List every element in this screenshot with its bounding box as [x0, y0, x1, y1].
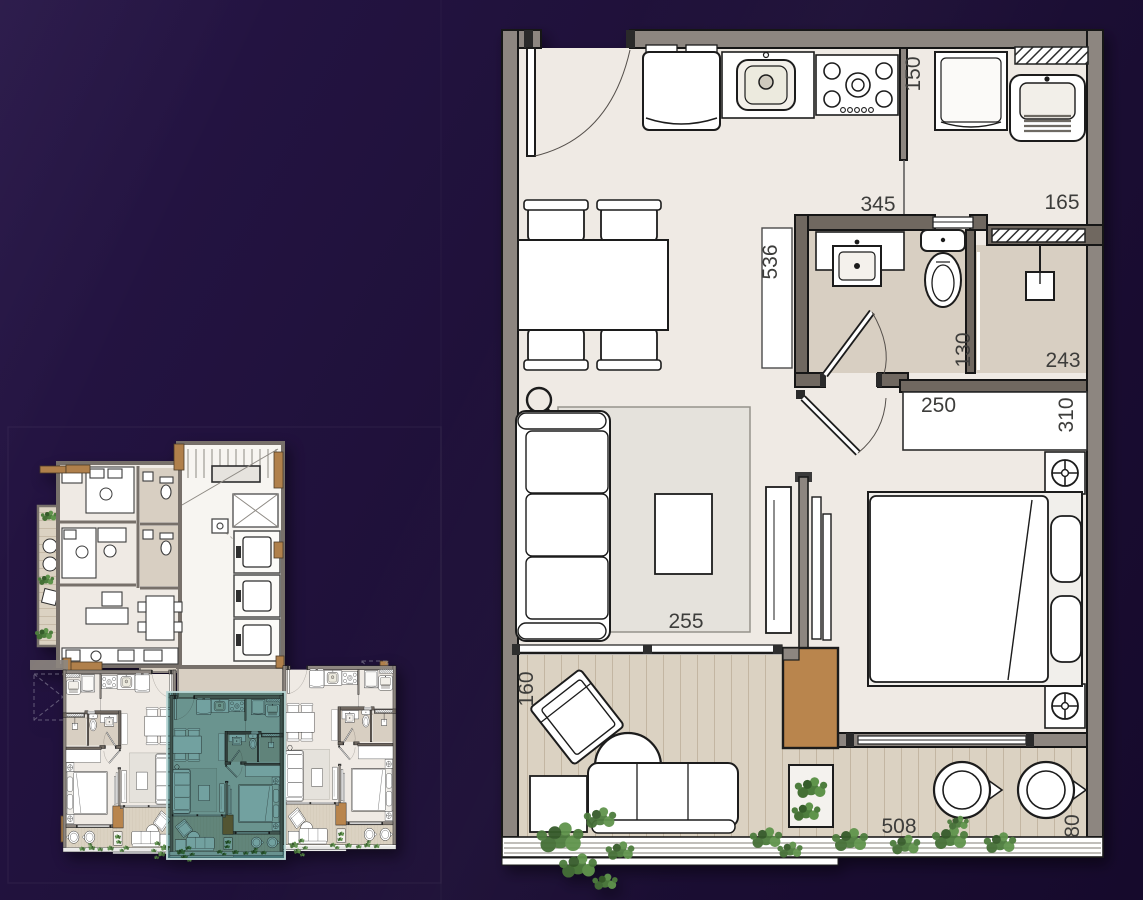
- key-unit-right: [283, 666, 396, 857]
- dim-bath: 130: [952, 332, 975, 367]
- accessible-lobby-icon: [212, 519, 228, 533]
- elevator-icon: [234, 575, 280, 617]
- core-stairs-elevators: [178, 443, 283, 667]
- highlighted-unit-overlay: [167, 692, 285, 859]
- dim-balcony-depth: 160: [515, 671, 538, 706]
- floor-plan-svg: 150 345 165 536 130 243 250 310 255 160 …: [0, 0, 1143, 900]
- elevator-icon: [234, 619, 280, 661]
- dim-wardrobe: 250: [921, 394, 956, 417]
- upper-unit: [35, 463, 182, 666]
- key-plan: [30, 443, 396, 862]
- dim-living-len: 536: [759, 244, 782, 279]
- shaft-x: [233, 494, 278, 527]
- key-unit-left: [63, 670, 176, 859]
- dim-bedroom: 310: [1055, 397, 1078, 432]
- unit-plan: 150 345 165 536 130 243 250 310 255 160 …: [502, 30, 1103, 890]
- dim-balcony-len: 508: [881, 815, 916, 838]
- dim-service: 165: [1044, 191, 1079, 214]
- dim-hall: 345: [860, 193, 895, 216]
- floor-plan-canvas: 150 345 165 536 130 243 250 310 255 160 …: [0, 0, 1143, 900]
- dim-shower: 243: [1045, 349, 1080, 372]
- dim-balcony-end: 80: [1061, 814, 1084, 837]
- dim-living-w: 255: [668, 610, 703, 633]
- dim-kitchen-pass: 150: [902, 56, 925, 91]
- elevator-icon: [234, 531, 280, 573]
